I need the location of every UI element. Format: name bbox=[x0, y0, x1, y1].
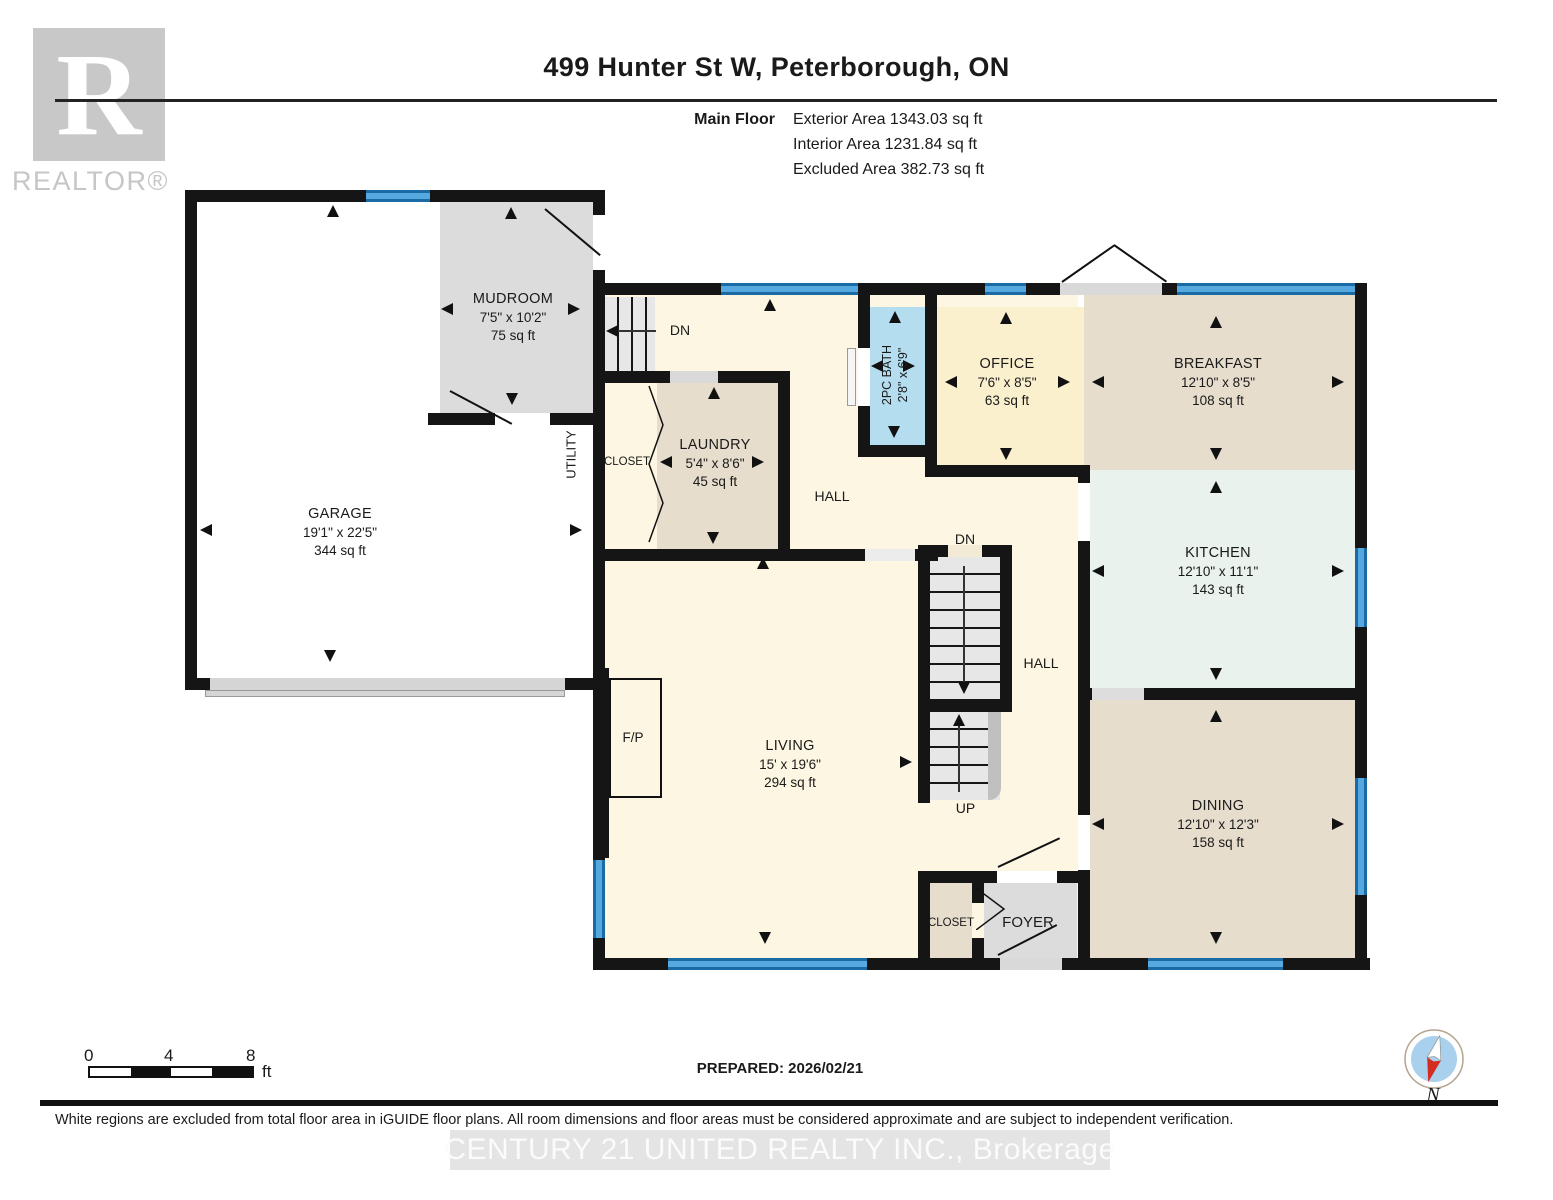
door-opening bbox=[593, 215, 605, 270]
scale-segment bbox=[131, 1068, 172, 1076]
hall-lower-label: HALL bbox=[991, 655, 1091, 671]
stairs-down bbox=[930, 557, 1000, 700]
room-kitchen: KITCHEN 12'10" x 11'1" 143 sq ft bbox=[1118, 544, 1318, 599]
dim-arrow bbox=[327, 205, 339, 217]
dim-arrow bbox=[1210, 316, 1222, 328]
breakfast-window bbox=[1177, 283, 1355, 295]
fireplace-label: F/P bbox=[608, 730, 658, 745]
foyer-closet-label: CLOSET bbox=[918, 917, 984, 929]
office-window bbox=[985, 283, 1026, 295]
french-door-right-leaf bbox=[1113, 244, 1167, 282]
stairs-down-arrow-line bbox=[963, 566, 965, 682]
stairs-up-rail bbox=[988, 712, 1001, 800]
wall bbox=[972, 938, 984, 958]
exterior-area: Exterior Area 1343.03 sq ft bbox=[793, 111, 1073, 129]
dim-arrow bbox=[1332, 376, 1344, 388]
dim-arrow bbox=[1210, 710, 1222, 722]
dim-arrow bbox=[888, 426, 900, 438]
door-opening bbox=[1078, 483, 1090, 541]
door-opening bbox=[997, 871, 1057, 883]
scale-0: 0 bbox=[84, 1046, 93, 1066]
door-opening bbox=[858, 348, 870, 406]
scale-4: 4 bbox=[164, 1046, 173, 1066]
scale-8: 8 bbox=[246, 1046, 255, 1066]
floor-plan-page: R REALTOR® 499 Hunter St W, Peterborough… bbox=[0, 0, 1553, 1200]
kitchen-window bbox=[1355, 548, 1367, 627]
stairs-up-arrow-line bbox=[958, 724, 960, 792]
realtor-logo: R bbox=[33, 28, 165, 161]
front-door-opening bbox=[1000, 958, 1062, 970]
room-garage: GARAGE 19'1" x 22'5" 344 sq ft bbox=[240, 505, 440, 560]
stairs-down-arrow bbox=[958, 682, 970, 694]
disclaimer-text: White regions are excluded from total fl… bbox=[55, 1112, 1305, 1128]
up-stairs-label: UP bbox=[938, 800, 993, 816]
dim-arrow bbox=[1000, 312, 1012, 324]
stairs-up-arrow bbox=[953, 714, 965, 726]
hall-window bbox=[721, 283, 858, 295]
header-divider bbox=[55, 99, 1497, 102]
dim-arrow bbox=[764, 299, 776, 311]
brokerage-watermark-text: CENTURY 21 UNITED REALTY INC., Brokerage bbox=[444, 1133, 1115, 1167]
excluded-area: Excluded Area 382.73 sq ft bbox=[793, 161, 1073, 179]
chimney bbox=[593, 668, 609, 858]
prepared-date: PREPARED: 2026/02/21 bbox=[650, 1060, 910, 1077]
scale-segment bbox=[212, 1068, 253, 1076]
dn-stairs-label: DN bbox=[943, 531, 987, 547]
page-title: 499 Hunter St W, Peterborough, ON bbox=[300, 52, 1253, 83]
compass-icon bbox=[1403, 1028, 1465, 1090]
scale-bar bbox=[88, 1066, 254, 1078]
hall-upper-label: HALL bbox=[782, 488, 882, 504]
opening bbox=[865, 549, 915, 561]
french-door-opening bbox=[1060, 283, 1162, 295]
dim-arrow bbox=[1092, 565, 1104, 577]
dining-window bbox=[1355, 778, 1367, 895]
dim-arrow bbox=[708, 387, 720, 399]
dim-arrow bbox=[1210, 932, 1222, 944]
dim-arrow bbox=[324, 650, 336, 662]
room-breakfast: BREAKFAST 12'10" x 8'5" 108 sq ft bbox=[1118, 355, 1318, 410]
realtor-logo-text: REALTOR® bbox=[12, 166, 169, 197]
living-side-window bbox=[593, 860, 605, 938]
dim-arrow bbox=[1210, 668, 1222, 680]
dim-arrow bbox=[1332, 565, 1344, 577]
interior-area: Interior Area 1231.84 sq ft bbox=[793, 136, 1073, 154]
wall bbox=[428, 190, 605, 202]
wall bbox=[925, 465, 1090, 477]
laundry-closet-label: CLOSET bbox=[595, 456, 659, 468]
dim-arrow bbox=[889, 311, 901, 323]
wall bbox=[185, 190, 197, 690]
bath-door-leaf bbox=[847, 348, 856, 406]
wall bbox=[1000, 545, 1012, 700]
brokerage-watermark: CENTURY 21 UNITED REALTY INC., Brokerage bbox=[450, 1130, 1110, 1170]
room-mudroom: MUDROOM 7'5" x 10'2" 75 sq ft bbox=[413, 290, 613, 345]
dim-arrow bbox=[759, 932, 771, 944]
dim-arrow bbox=[757, 557, 769, 569]
floor-label: Main Floor bbox=[575, 111, 775, 129]
scale-segment bbox=[90, 1068, 131, 1076]
dim-arrow bbox=[1332, 818, 1344, 830]
dim-arrow bbox=[1000, 448, 1012, 460]
dim-arrow bbox=[570, 524, 582, 536]
room-dining: DINING 12'10" x 12'3" 158 sq ft bbox=[1118, 797, 1318, 852]
wall bbox=[918, 700, 1012, 712]
garage-door bbox=[210, 678, 565, 690]
garage-window bbox=[366, 190, 430, 202]
wall bbox=[858, 445, 937, 457]
dim-arrow bbox=[900, 756, 912, 768]
dim-arrow bbox=[1210, 448, 1222, 460]
dining-bottom-window bbox=[1148, 958, 1283, 970]
foyer-label: FOYER bbox=[978, 914, 1078, 931]
dim-arrow bbox=[200, 524, 212, 536]
room-living: LIVING 15' x 19'6" 294 sq ft bbox=[690, 737, 890, 792]
garage-door-track bbox=[205, 690, 565, 697]
scale-segment bbox=[171, 1068, 212, 1076]
dn-upper-label: DN bbox=[658, 322, 702, 338]
footer-divider bbox=[40, 1100, 1498, 1106]
living-bottom-window bbox=[668, 958, 867, 970]
cased-opening bbox=[1092, 688, 1144, 700]
french-door-left-leaf bbox=[1061, 244, 1115, 282]
wall bbox=[918, 545, 930, 803]
dim-arrow bbox=[1092, 818, 1104, 830]
room-office: OFFICE 7'6" x 8'5" 63 sq ft bbox=[907, 355, 1107, 410]
dim-arrow bbox=[506, 393, 518, 405]
realtor-logo-letter: R bbox=[56, 36, 141, 154]
door-opening bbox=[1078, 815, 1090, 870]
utility-label: UTILITY bbox=[564, 410, 579, 500]
dim-arrow bbox=[707, 532, 719, 544]
basement-stairs-arrow-line bbox=[614, 330, 656, 332]
cased-opening bbox=[670, 371, 718, 383]
scale-unit: ft bbox=[262, 1062, 271, 1082]
dim-arrow bbox=[1210, 481, 1222, 493]
dim-arrow bbox=[505, 207, 517, 219]
